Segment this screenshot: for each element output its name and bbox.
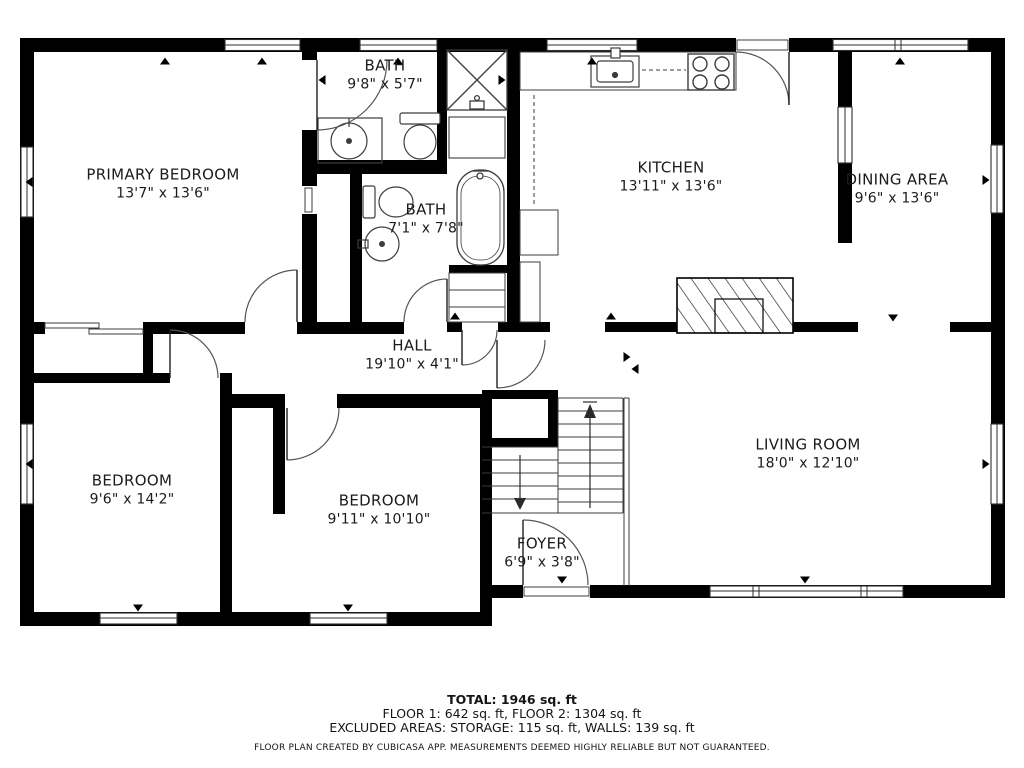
room-name: BATH — [388, 201, 464, 220]
room-label: KITCHEN13'11" x 13'6" — [620, 159, 723, 196]
room-dimensions: 7'1" x 7'8" — [388, 219, 464, 237]
room-label: DINING AREA9'6" x 13'6" — [846, 171, 949, 208]
room-name: PRIMARY BEDROOM — [86, 166, 239, 185]
room-label: PRIMARY BEDROOM13'7" x 13'6" — [86, 166, 239, 203]
floor-areas-text: FLOOR 1: 642 sq. ft, FLOOR 2: 1304 sq. f… — [0, 707, 1024, 721]
room-name: BEDROOM — [328, 492, 431, 511]
room-dimensions: 6'9" x 3'8" — [504, 553, 580, 571]
room-dimensions: 9'8" x 5'7" — [347, 75, 423, 93]
room-label: BATH9'8" x 5'7" — [347, 57, 423, 94]
room-name: BATH — [347, 57, 423, 76]
room-name: DINING AREA — [846, 171, 949, 190]
room-dimensions: 13'11" x 13'6" — [620, 177, 723, 195]
room-dimensions: 18'0" x 12'10" — [755, 454, 860, 472]
room-name: LIVING ROOM — [755, 436, 860, 455]
room-label: BEDROOM9'11" x 10'10" — [328, 492, 431, 529]
room-dimensions: 9'11" x 10'10" — [328, 510, 431, 528]
room-label: BATH7'1" x 7'8" — [388, 201, 464, 238]
room-name: FOYER — [504, 535, 580, 554]
room-name: KITCHEN — [620, 159, 723, 178]
room-dimensions: 19'10" x 4'1" — [365, 355, 459, 373]
disclaimer-text: FLOOR PLAN CREATED BY CUBICASA APP. MEAS… — [0, 742, 1024, 754]
room-label: HALL19'10" x 4'1" — [365, 337, 459, 374]
room-name: BEDROOM — [90, 472, 175, 491]
room-name: HALL — [365, 337, 459, 356]
room-label: BEDROOM9'6" x 14'2" — [90, 472, 175, 509]
floor-plan-page: PRIMARY BEDROOM13'7" x 13'6"BATH9'8" x 5… — [0, 0, 1024, 768]
total-area-text: TOTAL: 1946 sq. ft — [0, 692, 1024, 707]
room-dimensions: 9'6" x 13'6" — [846, 189, 949, 207]
room-dimensions: 13'7" x 13'6" — [86, 184, 239, 202]
room-label: FOYER6'9" x 3'8" — [504, 535, 580, 572]
room-label: LIVING ROOM18'0" x 12'10" — [755, 436, 860, 473]
excluded-areas-text: EXCLUDED AREAS: STORAGE: 115 sq. ft, WAL… — [0, 721, 1024, 735]
room-dimensions: 9'6" x 14'2" — [90, 490, 175, 508]
room-labels: PRIMARY BEDROOM13'7" x 13'6"BATH9'8" x 5… — [0, 0, 1024, 768]
footer-summary: TOTAL: 1946 sq. ft FLOOR 1: 642 sq. ft, … — [0, 692, 1024, 754]
